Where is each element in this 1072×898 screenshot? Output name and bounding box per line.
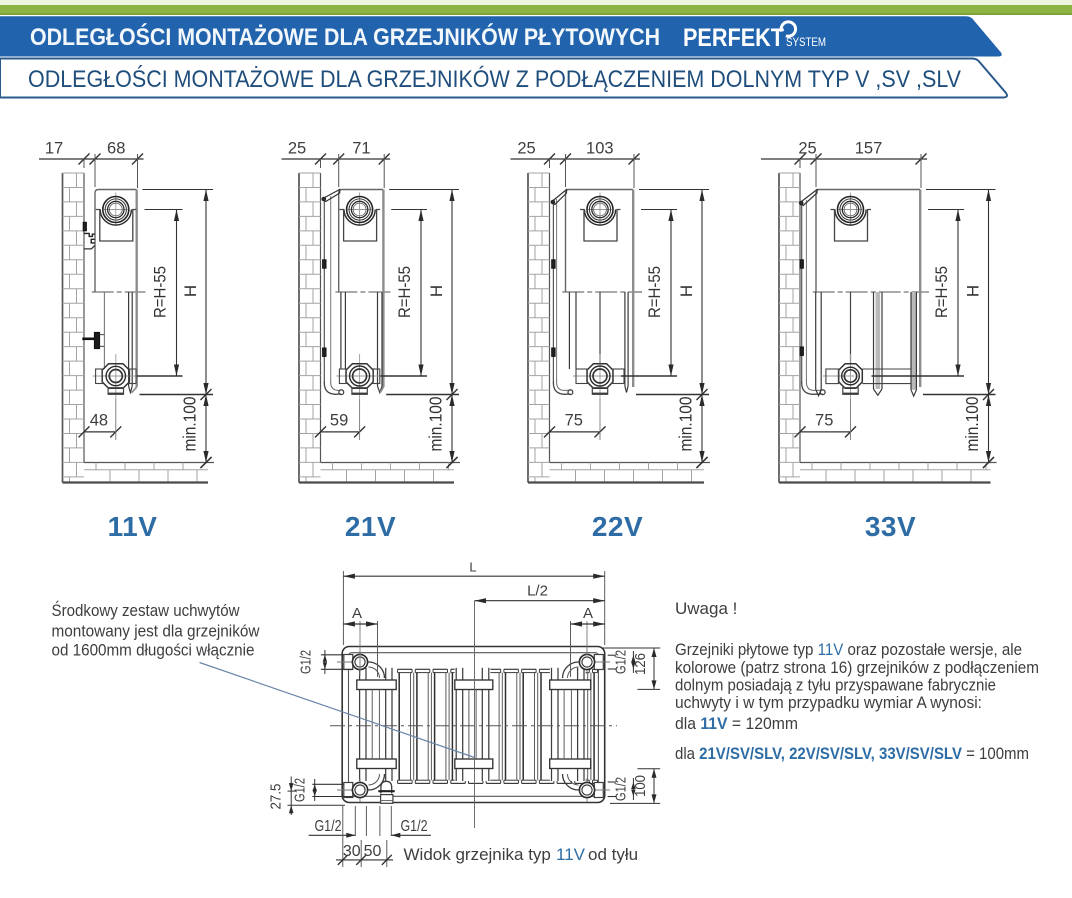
svg-text:H: H xyxy=(427,285,446,297)
svg-text:75: 75 xyxy=(815,412,833,430)
svg-text:157: 157 xyxy=(855,140,883,158)
svg-text:PERFEKT: PERFEKT xyxy=(683,24,784,52)
svg-text:126: 126 xyxy=(633,653,649,675)
svg-text:montowany jest dla grzejników: montowany jest dla grzejników xyxy=(52,623,260,641)
svg-text:L: L xyxy=(469,560,476,575)
svg-text:dolnym posiadają z tyłu przysp: dolnym posiadają z tyłu przyspawane fabr… xyxy=(675,677,996,695)
svg-text:G1/2: G1/2 xyxy=(315,818,342,835)
svg-text:48: 48 xyxy=(90,412,108,430)
svg-text:G1/2: G1/2 xyxy=(614,777,630,801)
svg-text:dla 11V = 120mm: dla 11V = 120mm xyxy=(675,715,798,733)
svg-text:25: 25 xyxy=(288,140,306,158)
svg-text:dla 21V/SV/SLV, 22V/SV/SLV, 33: dla 21V/SV/SLV, 22V/SV/SLV, 33V/SV/SLV =… xyxy=(675,745,1029,763)
svg-text:103: 103 xyxy=(586,140,614,158)
svg-text:A: A xyxy=(583,605,593,622)
svg-text:ODLEGŁOŚCI MONTAŻOWE DLA GR: ODLEGŁOŚCI MONTAŻOWE DLA GRZEJNIKÓW PŁYT… xyxy=(30,23,660,51)
svg-text:L/2: L/2 xyxy=(527,583,548,600)
svg-text:min.100: min.100 xyxy=(962,396,982,451)
svg-text:R=H-55: R=H-55 xyxy=(645,266,664,318)
svg-text:17: 17 xyxy=(45,140,63,158)
svg-text:Grzejniki płytowe typ 11V oraz: Grzejniki płytowe typ 11V oraz pozostałe… xyxy=(675,641,1022,659)
svg-text:21V: 21V xyxy=(345,511,396,542)
svg-text:od tyłu: od tyłu xyxy=(588,845,638,864)
svg-text:A: A xyxy=(352,605,362,622)
svg-text:uchwyty i w tym przypadku wymi: uchwyty i w tym przypadku wymiar A wynos… xyxy=(675,694,982,712)
svg-text:min.100: min.100 xyxy=(676,396,696,451)
svg-text:H: H xyxy=(677,285,696,297)
svg-text:G1/2: G1/2 xyxy=(614,650,630,674)
svg-text:R=H-55: R=H-55 xyxy=(151,266,170,318)
svg-text:100: 100 xyxy=(633,775,649,797)
svg-text:71: 71 xyxy=(352,140,370,158)
svg-text:SYSTEM: SYSTEM xyxy=(786,37,826,49)
svg-text:11V: 11V xyxy=(556,845,586,864)
svg-text:od 1600mm długości włącznie: od 1600mm długości włącznie xyxy=(52,642,255,660)
svg-text:Uwaga !: Uwaga ! xyxy=(675,599,737,618)
svg-text:22V: 22V xyxy=(592,511,643,542)
svg-text:G1/2: G1/2 xyxy=(293,778,309,802)
svg-text:50: 50 xyxy=(364,843,382,860)
svg-text:G1/2: G1/2 xyxy=(401,818,428,835)
svg-text:27.5: 27.5 xyxy=(269,784,285,810)
svg-text:25: 25 xyxy=(798,140,816,158)
svg-text:G1/2: G1/2 xyxy=(299,650,315,674)
svg-text:ODLEGŁOŚCI MONTAŻOWE DLA GRZEJ: ODLEGŁOŚCI MONTAŻOWE DLA GRZEJNIKÓW Z PO… xyxy=(28,65,961,93)
svg-text:R=H-55: R=H-55 xyxy=(932,266,951,318)
svg-text:Środkowy zestaw uchwytów: Środkowy zestaw uchwytów xyxy=(52,601,240,620)
svg-text:H: H xyxy=(181,285,200,297)
svg-text:min.100: min.100 xyxy=(180,396,200,451)
svg-text:68: 68 xyxy=(107,140,125,158)
svg-text:11V: 11V xyxy=(108,511,158,542)
svg-text:33V: 33V xyxy=(865,511,916,542)
svg-text:Widok grzejnika typ: Widok grzejnika typ xyxy=(404,845,551,864)
svg-text:kolorowe (patrz strona 16) grz: kolorowe (patrz strona 16) grzejników z … xyxy=(675,659,1039,677)
svg-text:59: 59 xyxy=(330,412,348,430)
svg-text:25: 25 xyxy=(517,140,535,158)
svg-text:H: H xyxy=(964,285,983,297)
svg-text:min.100: min.100 xyxy=(426,396,446,451)
svg-text:30: 30 xyxy=(343,843,361,860)
svg-text:75: 75 xyxy=(565,412,583,430)
svg-text:R=H-55: R=H-55 xyxy=(395,266,414,318)
